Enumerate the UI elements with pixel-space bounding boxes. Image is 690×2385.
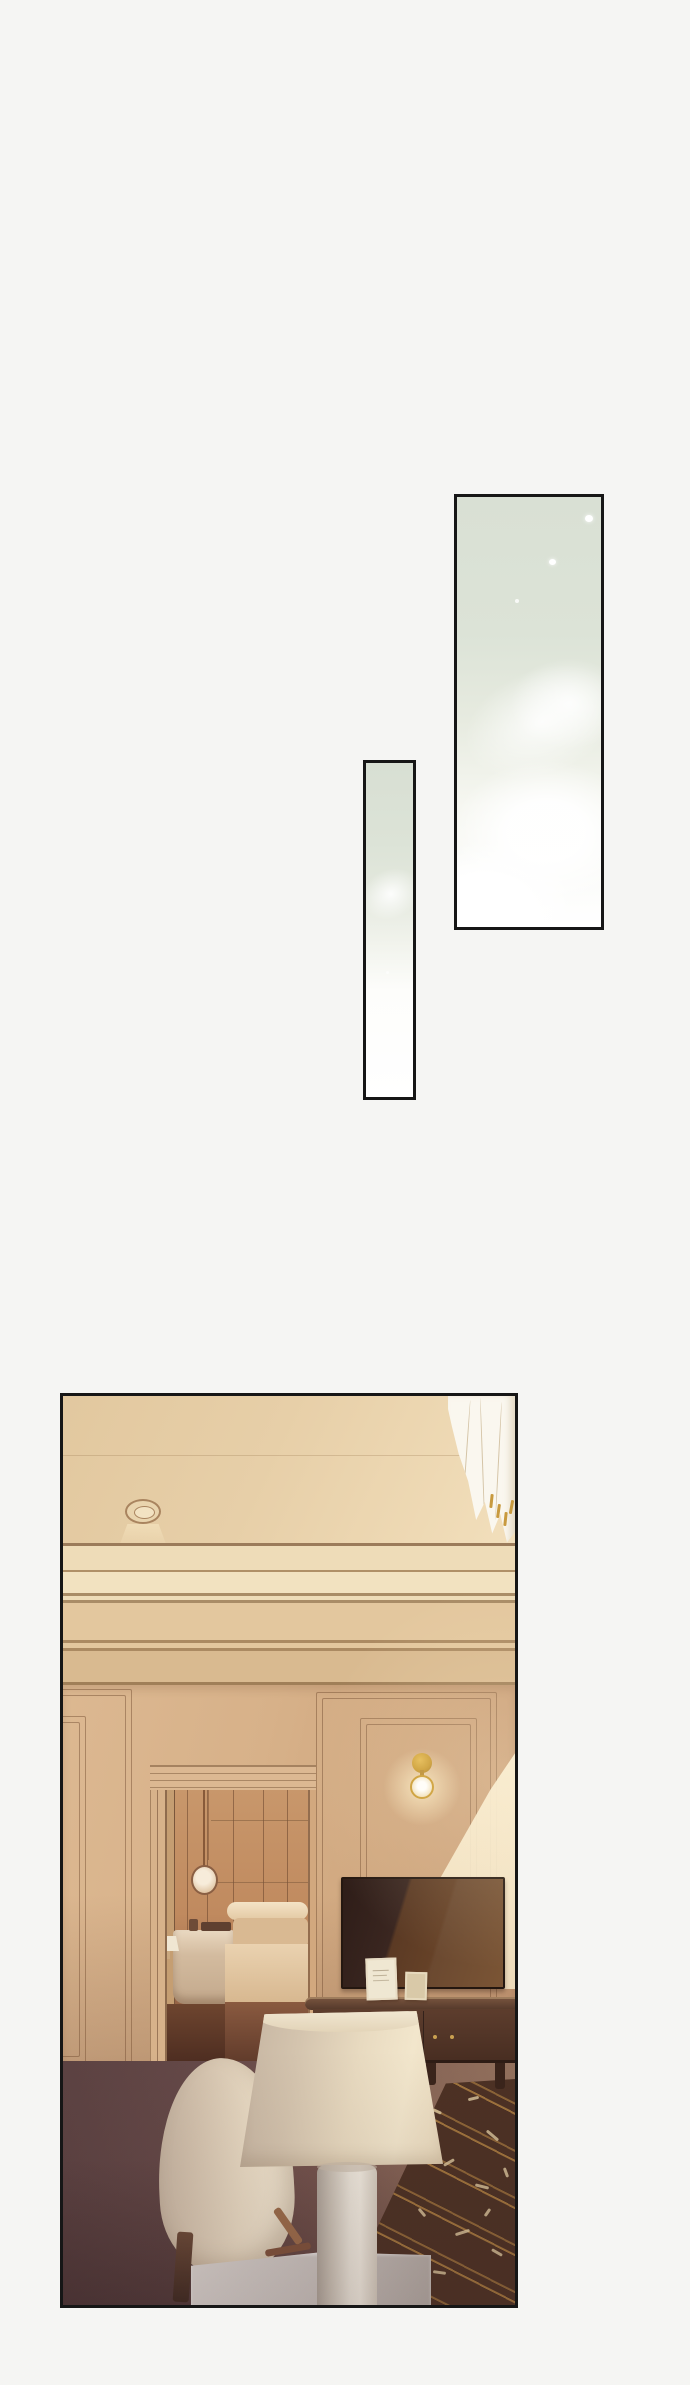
bedroom-lamp-stem	[167, 1951, 170, 1959]
light-speck	[515, 599, 519, 603]
cloud-highlight	[363, 843, 416, 945]
doorway-jamb-right	[308, 1790, 316, 2030]
doorway-header-line	[150, 1780, 316, 1781]
console-leg	[495, 2063, 505, 2089]
hanging-round-mirror	[191, 1865, 218, 1895]
panel-sky-sliver	[363, 760, 416, 1100]
bedroom-panel-line	[187, 1790, 188, 1940]
panel-sky-tall	[454, 494, 604, 930]
frame-photo-line	[373, 1975, 387, 1976]
doorway-jamb-left	[150, 1790, 167, 2080]
mirror-cord	[203, 1790, 205, 1866]
light-speck	[585, 515, 593, 522]
ceiling	[63, 1396, 515, 1544]
ceiling-downlight	[125, 1499, 161, 1524]
console-knob	[450, 2035, 454, 2039]
ceiling-seam-line	[63, 1455, 515, 1456]
webtoon-page: { "page": { "type": "webtoon-episode-str…	[0, 0, 690, 2385]
table-lamp-shade	[240, 2011, 443, 2167]
picture-frame-large	[365, 1957, 397, 2000]
bed-blanket	[225, 1944, 308, 2004]
bedside-cup	[189, 1919, 198, 1931]
doorway-header-line	[150, 1773, 316, 1774]
wall-sconce-globe	[410, 1775, 434, 1799]
frame-photo-line	[373, 1980, 389, 1982]
jamb-line	[157, 1790, 158, 2080]
console-knob	[433, 2035, 437, 2039]
table-lamp-body	[317, 2165, 377, 2305]
doorway-header-line	[150, 1787, 316, 1788]
cloud-highlight	[454, 609, 604, 834]
doorway-header	[150, 1765, 316, 1790]
crown-molding	[63, 1543, 515, 1685]
downlight-inner-ring	[134, 1506, 155, 1519]
panel-room	[60, 1393, 518, 2308]
light-speck	[386, 971, 389, 974]
curtain-fold-line	[495, 1402, 502, 1520]
wall-molding-left-inner2	[60, 1722, 80, 2057]
bedroom-panel-rail	[211, 1820, 308, 1821]
light-speck	[549, 559, 556, 565]
bedroom-panel-rail	[211, 1882, 308, 1883]
lamp-body-top-shadow	[317, 2162, 377, 2172]
bedside-table-items	[201, 1922, 231, 1931]
frame-photo-line	[373, 1970, 389, 1972]
mirror-cord	[208, 1790, 209, 1860]
picture-frame-small	[405, 1972, 428, 2001]
